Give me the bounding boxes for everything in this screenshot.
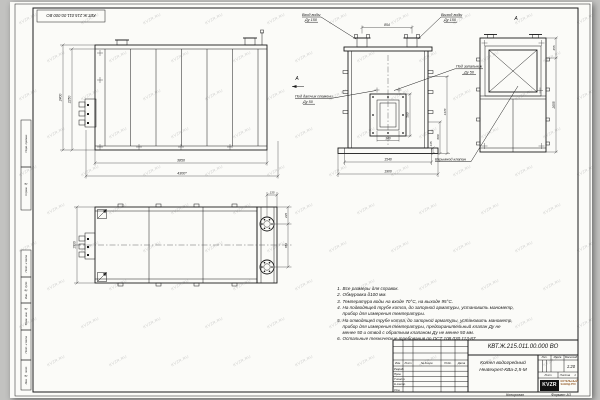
note-text: Температура воды на входе 70°С, на выход…	[343, 299, 515, 305]
note-item: 4. На подводящей трубе котла, до запорно…	[334, 305, 514, 317]
frame-label-vzam-inv: Взам. инв. №	[21, 303, 31, 330]
frame-label-podp-data-2: Подп. и дата	[21, 330, 31, 360]
svg-text:Ду 50: Ду 50	[302, 100, 314, 104]
note-item: 3. Температура воды на входе 70°С, на вы…	[334, 299, 514, 305]
dim-plan-width: 1900	[73, 241, 77, 249]
plan-dims: 1900 135 235 854	[73, 190, 292, 284]
note-number: 5.	[334, 318, 343, 336]
note-number: 1.	[334, 286, 343, 292]
plan-burner-bracket	[79, 233, 95, 259]
label-explosion-valve: Взрывной клапан	[435, 86, 518, 162]
dim-view-a-top: 455	[552, 45, 556, 50]
kvzr-logo: KVZR	[540, 380, 559, 391]
dim-front-width-outer: 4300*	[177, 172, 187, 176]
note-number: 3.	[334, 299, 343, 305]
section-base	[338, 148, 438, 154]
explosion-valve-panel	[485, 46, 541, 96]
section-dim-base: 1540 1900	[337, 154, 440, 178]
note-item: 1. Все размеры для справок.	[334, 286, 514, 292]
plan-view: 1900 135 235 854	[73, 190, 292, 286]
dim-burner-height: 580	[406, 112, 410, 118]
note-text: Остальные технические требования по ОСТ …	[343, 336, 515, 342]
dim-front-height-outer: 2400	[59, 94, 63, 103]
view-a-dims: 455 2055	[546, 37, 558, 154]
front-top-stub-left	[115, 40, 129, 45]
note-text: Обмуровка δ100 мм.	[343, 292, 515, 298]
dim-front-height-inner: 2250	[68, 96, 72, 105]
dim-plan-offset: 135	[269, 190, 274, 194]
inverted-doc-stamp: КВТ.Ж.215.011.00.000 ВО	[37, 10, 105, 22]
dim-600: 600	[436, 134, 440, 139]
front-burner-bracket	[79, 99, 96, 127]
company-line2: ЗАВОД.РУС	[561, 383, 579, 387]
dim-plan-edge: 235	[284, 213, 288, 219]
notes-list: 1. Все размеры для справок. 2. Обмуровка…	[334, 286, 514, 342]
dim-base-height: 135	[429, 141, 433, 146]
label-igniter: Под запальник Ду 50	[394, 65, 483, 91]
frame-label-inv-dubl: Инв. № дубл.	[21, 277, 31, 303]
section-view: 854 580 340	[295, 13, 483, 177]
plan-flange-bottom	[260, 260, 274, 274]
svg-text:Ду 150: Ду 150	[304, 18, 318, 22]
plan-hatch-marks	[98, 210, 107, 282]
view-a: А	[435, 16, 558, 162]
dim-plan-nozzles: 854	[284, 243, 288, 248]
dim-base-inner: 1540	[384, 158, 392, 162]
svg-text:Вход воды: Вход воды	[302, 13, 321, 17]
section-dim-right: 135 600 1470	[428, 75, 450, 155]
front-chimney	[243, 30, 264, 45]
dim-view-a-main: 2055	[552, 101, 556, 109]
plan-flange-top	[260, 217, 274, 231]
svg-text:Выход воды: Выход воды	[441, 13, 463, 17]
front-dim-heights: 2400 2250	[59, 44, 95, 152]
section-cut-arrow: А	[292, 76, 304, 88]
svg-text:Под датчик пламени: Под датчик пламени	[295, 94, 333, 98]
frame-label-inv-podl: Инв. № подл.	[21, 360, 31, 390]
view-a-title: А	[513, 16, 518, 22]
note-text: На отводящей трубе котла, до запорной ар…	[343, 318, 515, 336]
front-dim-widths: 3850 4300*	[85, 130, 280, 179]
note-text: На подводящей трубе котла, до запорной а…	[343, 305, 515, 317]
note-number: 6.	[334, 336, 343, 342]
frame-label-perv-primen: Перв. примен.	[21, 120, 31, 167]
note-item: 6. Остальные технические требования по О…	[334, 336, 514, 342]
dim-burner-width: 340	[385, 136, 391, 140]
frame-label-podp-data-1: Подп. и дата	[21, 250, 31, 277]
note-number: 4.	[334, 305, 343, 317]
section-dim-nozzles: 854	[361, 23, 414, 33]
section-arrow-label: А	[294, 76, 299, 82]
svg-text:Взрывной клапан: Взрывной клапан	[435, 158, 467, 162]
note-item: 5. На отводящей трубе котла, до запорной…	[334, 318, 514, 336]
water-inlet-nozzle	[354, 35, 371, 48]
note-text: Все размеры для справок.	[343, 286, 515, 292]
svg-text:Ду 50: Ду 50	[463, 70, 475, 74]
dim-1470: 1470	[443, 108, 447, 115]
drawing-screenshot: KVZR.RUKVZR.RUKVZR.RUKVZR.RUKVZR.RUKVZR.…	[0, 0, 600, 400]
dim-front-width-inner: 3850	[177, 159, 185, 163]
label-flame-sensor: Под датчик пламени Ду 50	[295, 91, 376, 105]
label-outlet: Выход воды Ду 150	[418, 13, 463, 39]
note-number: 2.	[334, 292, 343, 298]
dim-base-outer: 1900	[384, 170, 392, 174]
note-item: 2. Обмуровка δ100 мм.	[334, 292, 514, 298]
label-inlet: Вход воды Ду 150	[302, 13, 356, 39]
company-name: КОТЕЛЬНЫЙ ЗАВОД.РУС	[561, 380, 579, 387]
svg-text:Ду 150: Ду 150	[443, 18, 457, 22]
front-view: 2400 2250 3850 4300* А	[59, 30, 304, 179]
frame-label-sprav: Справ. №	[21, 167, 31, 210]
svg-text:Под запальник: Под запальник	[456, 65, 482, 69]
water-outlet-nozzle	[404, 35, 421, 48]
dim-nozzle-spacing: 854	[384, 23, 390, 27]
